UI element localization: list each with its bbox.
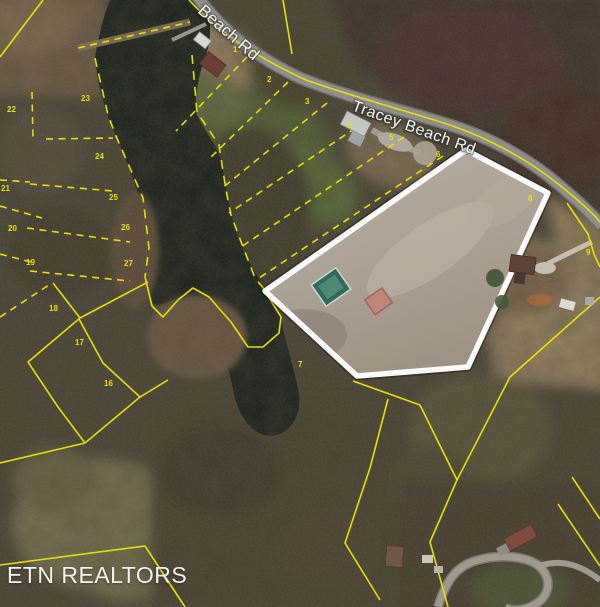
parcel-number-2: 2 (267, 75, 272, 84)
shed (422, 555, 433, 563)
parcel-number-21: 21 (1, 184, 10, 193)
parcel-number-27: 27 (124, 259, 133, 268)
parcel-number-26: 26 (121, 223, 130, 232)
parcel-number-6: 6 (436, 150, 441, 159)
parcel-number-18: 18 (49, 304, 58, 313)
satellite-map: 123456789161718192021222324252627 Beach … (0, 0, 600, 607)
parcel-number-19: 19 (26, 258, 35, 267)
bottom-house (385, 545, 404, 567)
parcel-number-20: 20 (8, 224, 17, 233)
parcel-number-17: 17 (75, 338, 84, 347)
parcel-number-23: 23 (81, 94, 90, 103)
gray-shed (585, 297, 594, 305)
listing-map-image: 123456789161718192021222324252627 Beach … (0, 0, 600, 607)
parcel-number-25: 25 (109, 193, 118, 202)
parcel-number-7: 7 (298, 360, 303, 369)
parcel-number-22: 22 (7, 105, 16, 114)
parcel-number-4: 4 (347, 120, 352, 129)
parcel-number-16: 16 (104, 379, 113, 388)
watermark-etn-realtors: ETN REALTORS (7, 562, 187, 588)
shed (434, 566, 443, 573)
parcel-number-3: 3 (305, 97, 310, 106)
parcel-number-9: 9 (586, 248, 591, 257)
parcel-number-8: 8 (528, 194, 533, 203)
parcel-number-5: 5 (389, 133, 394, 142)
parcel-number-24: 24 (95, 152, 104, 161)
